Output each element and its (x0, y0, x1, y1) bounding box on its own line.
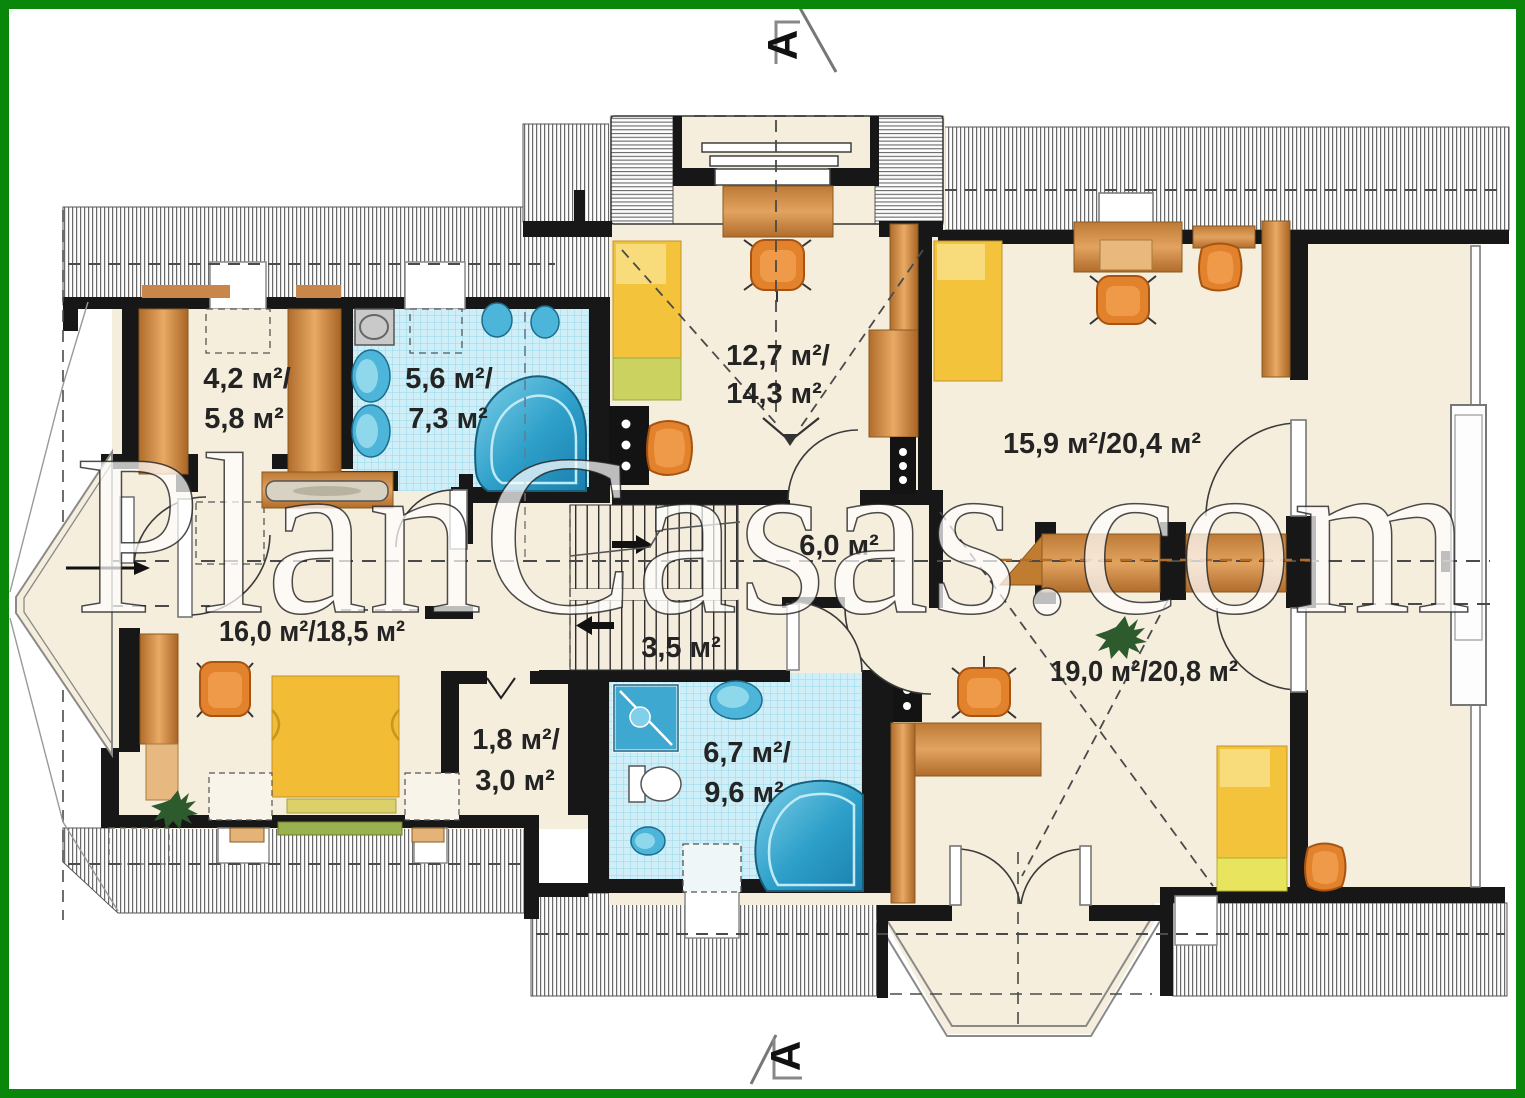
svg-text:4,2 м²/: 4,2 м²/ (203, 363, 291, 395)
svg-text:1,8 м²/: 1,8 м²/ (472, 724, 560, 756)
svg-text:A: A (759, 30, 806, 60)
svg-text:9,6 м²: 9,6 м² (704, 777, 784, 809)
svg-text:12,7 м²/: 12,7 м²/ (726, 340, 830, 372)
svg-text:14,3 м²: 14,3 м² (726, 378, 822, 410)
svg-text:PlanCasas.com: PlanCasas.com (74, 407, 1471, 662)
svg-text:6,7 м²/: 6,7 м²/ (703, 737, 791, 769)
svg-text:A: A (762, 1041, 809, 1071)
svg-text:5,6 м²/: 5,6 м²/ (405, 363, 493, 395)
svg-text:3,0 м²: 3,0 м² (475, 765, 555, 797)
